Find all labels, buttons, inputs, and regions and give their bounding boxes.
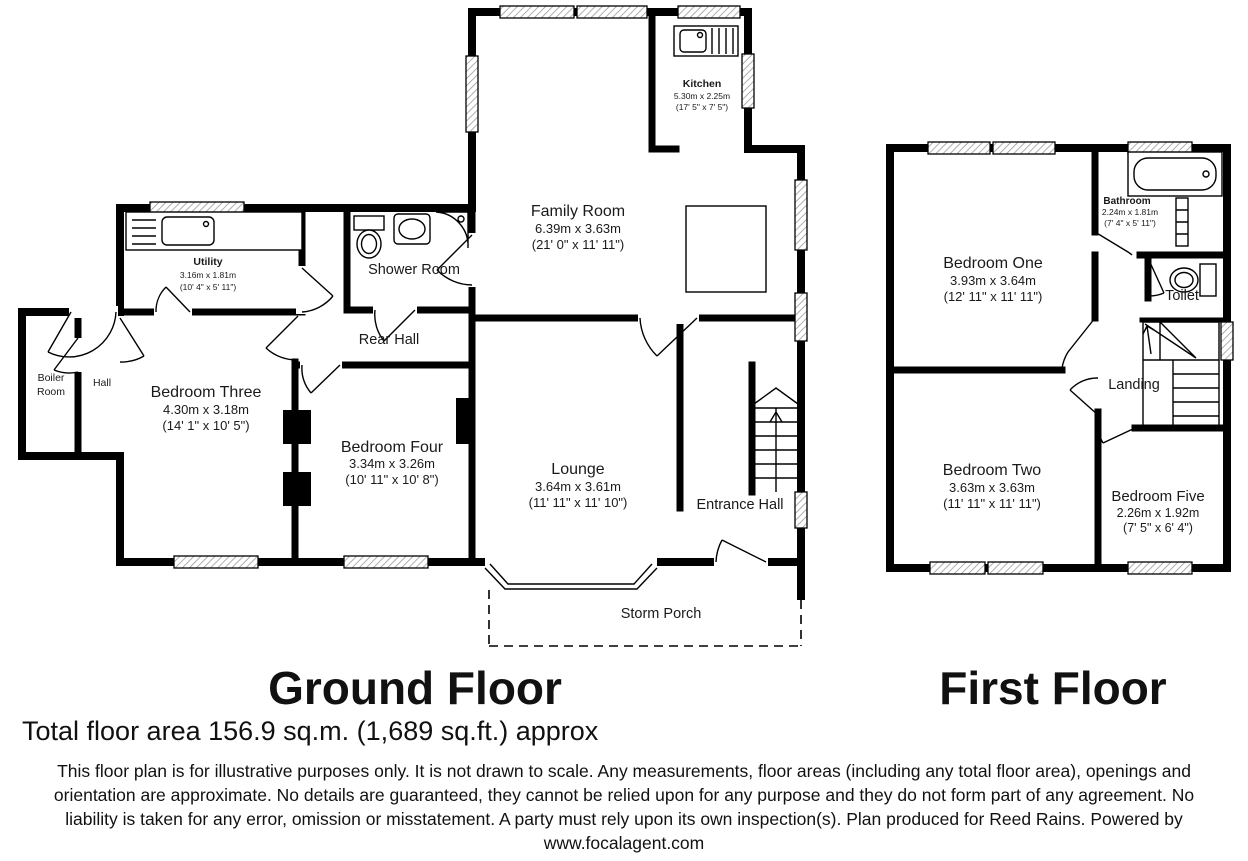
kitchen-label: Kitchen <box>683 78 722 90</box>
floorplan-page: Kitchen 5.30m x 2.25m (17' 5" x 7' 5") F… <box>0 0 1248 861</box>
family-room-dim-imperial: (21' 0" x 11' 11") <box>532 237 624 252</box>
toilet-bowl-inner-ff <box>1175 273 1193 288</box>
disclaimer-line-3: liability is taken for any error, omissi… <box>65 809 1183 829</box>
window <box>993 142 1055 154</box>
bedroom-four-dim-imperial: (10' 11" x 10' 8") <box>345 472 438 487</box>
window <box>466 56 478 132</box>
opening-bay <box>485 556 657 568</box>
window <box>344 556 428 568</box>
toilet-bowl-inner-gf <box>362 235 377 254</box>
kitchen-sink-unit <box>674 26 738 56</box>
towel-radiator <box>1176 198 1188 246</box>
bedroom-three-dim-metric: 4.30m x 3.18m <box>163 402 249 417</box>
bedroom-four-dim-metric: 3.34m x 3.26m <box>349 456 435 471</box>
window <box>742 54 754 108</box>
disclaimer-line-2: orientation are approximate. No details … <box>54 785 1194 805</box>
window <box>928 142 990 154</box>
bathroom-dim-metric: 2.24m x 1.81m <box>1102 207 1158 217</box>
first-floor-plan: Bathroom 2.24m x 1.81m (7' 4" x 5' 11") … <box>890 142 1233 574</box>
utility-dim-imperial: (10' 4" x 5' 11") <box>180 282 237 292</box>
disclaimer-line-4: www.focalagent.com <box>543 833 705 853</box>
opening-utility-rearhall <box>296 266 308 314</box>
opening-side-door <box>69 306 118 318</box>
window <box>795 293 807 341</box>
window <box>1221 322 1233 360</box>
boiler-room-label-line1: Boiler <box>38 372 65 384</box>
total-floor-area: Total floor area 156.9 sq.m. (1,689 sq.f… <box>22 716 599 746</box>
lounge-dim-imperial: (11' 11" x 11' 10") <box>529 495 628 510</box>
bedroom-five-dim-metric: 2.26m x 1.92m <box>1117 506 1200 520</box>
kitchen-tap <box>698 33 703 38</box>
bedroom-five-label: Bedroom Five <box>1111 488 1204 505</box>
chimney-breast <box>283 472 311 506</box>
bedroom-two-dim-imperial: (11' 11" x 11' 11") <box>943 496 1041 511</box>
lounge-label: Lounge <box>551 461 604 478</box>
kitchen-dim-metric: 5.30m x 2.25m <box>674 91 730 101</box>
family-room-dim-metric: 6.39m x 3.63m <box>535 221 621 236</box>
utility-label: Utility <box>193 256 222 268</box>
chimney-breast <box>456 398 473 444</box>
bedroom-one-label: Bedroom One <box>943 255 1043 272</box>
landing-label: Landing <box>1108 377 1160 393</box>
shower-head <box>458 216 464 222</box>
family-room-label: Family Room <box>531 203 625 220</box>
floorplan-drawing: Kitchen 5.30m x 2.25m (17' 5" x 7' 5") F… <box>0 0 1248 861</box>
window <box>577 6 647 18</box>
shower-room-label: Shower Room <box>368 262 460 278</box>
toilet-label: Toilet <box>1165 288 1199 304</box>
window <box>500 6 574 18</box>
bathroom-label: Bathroom <box>1103 196 1150 207</box>
bathtub <box>1128 152 1222 196</box>
bedroom-two-dim-metric: 3.63m x 3.63m <box>949 480 1035 495</box>
boiler-room-label-line2: Room <box>37 386 65 398</box>
kitchen-dim-imperial: (17' 5" x 7' 5") <box>676 102 728 112</box>
toilet-cistern-gf <box>354 216 384 230</box>
window <box>930 562 985 574</box>
utility-tap <box>204 222 209 227</box>
window <box>795 492 807 528</box>
bedroom-three-label: Bedroom Three <box>151 384 262 401</box>
window <box>1128 562 1192 574</box>
opening-front-door <box>714 556 768 568</box>
bay-outer-line <box>485 568 657 589</box>
window <box>174 556 258 568</box>
captions: Ground Floor First Floor Total floor are… <box>22 662 1167 746</box>
toilet-cistern-ff <box>1200 264 1216 296</box>
utility-dim-metric: 3.16m x 1.81m <box>180 270 236 280</box>
disclaimer-line-1: This floor plan is for illustrative purp… <box>57 761 1191 781</box>
window <box>678 6 740 18</box>
storm-porch-label: Storm Porch <box>621 606 702 622</box>
bedroom-five-dim-imperial: (7' 5" x 6' 4") <box>1123 521 1193 535</box>
window <box>988 562 1043 574</box>
first-floor-title: First Floor <box>939 662 1167 714</box>
bedroom-one-dim-imperial: (12' 11" x 11' 11") <box>944 289 1043 304</box>
bedroom-three-dim-imperial: (14' 1" x 10' 5") <box>162 418 249 433</box>
opening-hall-bed3 <box>114 316 126 364</box>
utility-sink-unit <box>126 212 302 250</box>
opening-family-lounge <box>638 312 699 324</box>
window <box>795 180 807 250</box>
basin-bowl-gf <box>399 219 425 239</box>
bedroom-two-label: Bedroom Two <box>943 462 1042 479</box>
entrance-hall-label: Entrance Hall <box>696 497 783 513</box>
bathtub-drain <box>1203 171 1209 177</box>
ground-floor-plan: Kitchen 5.30m x 2.25m (17' 5" x 7' 5") F… <box>22 6 807 646</box>
ground-floor-title: Ground Floor <box>268 662 562 714</box>
disclaimer: This floor plan is for illustrative purp… <box>54 761 1194 853</box>
hall-label: Hall <box>93 377 111 389</box>
bedroom-four-label: Bedroom Four <box>341 439 444 456</box>
bathroom-dim-imperial: (7' 4" x 5' 11") <box>1104 218 1156 228</box>
chimney-breast <box>283 410 311 444</box>
bedroom-one-dim-metric: 3.93m x 3.64m <box>950 273 1036 288</box>
lounge-dim-metric: 3.64m x 3.61m <box>535 479 621 494</box>
rear-hall-label: Rear Hall <box>359 332 419 348</box>
